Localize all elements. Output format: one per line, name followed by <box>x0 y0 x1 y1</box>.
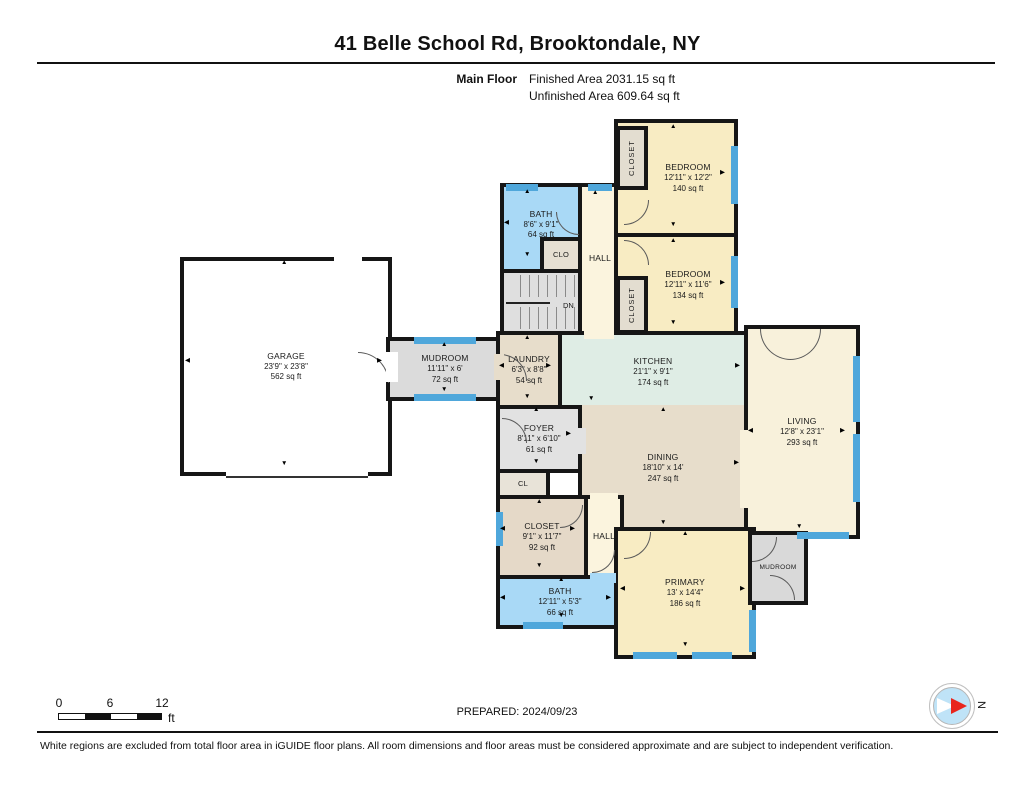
footer-divider <box>37 731 998 733</box>
door-opening <box>576 428 586 454</box>
stair-treads-upper <box>520 275 576 297</box>
room-label: CLOSET <box>627 140 637 176</box>
room-label: LIVING 12'8" x 23'1" 293 sq ft <box>780 416 824 448</box>
room-label: CLOSET 9'1" x 11'7" 92 sq ft <box>523 521 562 553</box>
room-label: CLOSET <box>627 287 637 323</box>
room-label: MUDROOM <box>759 564 796 572</box>
room-closet-bedroom-mid: CLOSET <box>616 276 648 334</box>
compass-north-label: N <box>975 701 987 709</box>
title-divider <box>37 62 995 64</box>
room-label: MUDROOM 11'11" x 6' 72 sq ft <box>421 353 468 385</box>
room-bath-lower: BATH 12'11" x 5'3" 66 sq ft <box>496 575 624 629</box>
disclaimer-text: White regions are excluded from total fl… <box>40 740 1000 752</box>
compass-rose-icon <box>933 687 971 725</box>
garage-door <box>226 468 368 478</box>
door-opening <box>590 493 618 503</box>
window <box>731 256 738 308</box>
finished-area: Finished Area 2031.15 sq ft <box>529 72 675 86</box>
floor-label: Main Floor <box>297 72 517 86</box>
window <box>506 184 538 191</box>
window <box>853 356 860 422</box>
stair-treads-lower <box>520 307 576 329</box>
room-label: BEDROOM 12'11" x 12'2" 140 sq ft <box>640 162 712 194</box>
room-kitchen: KITCHEN 21'1" x 9'1" 174 sq ft <box>558 331 748 409</box>
window <box>853 434 860 502</box>
room-label: BATH 12'11" x 5'3" 66 sq ft <box>538 586 581 618</box>
window <box>523 622 563 629</box>
window <box>414 337 476 344</box>
room-label: CL <box>518 479 528 489</box>
door-opening <box>386 352 398 382</box>
window <box>414 394 476 401</box>
room-closet-bedroom-top: CLOSET <box>616 126 648 190</box>
room-label: CLO <box>553 250 569 260</box>
room-label: BEDROOM 12'11" x 11'6" 134 sq ft <box>640 269 711 301</box>
compass-needle-red-icon <box>951 698 967 714</box>
stair-divider <box>506 302 550 304</box>
room-label: GARAGE 23'9" x 23'8" 562 sq ft <box>264 351 308 383</box>
window <box>588 184 612 191</box>
room-label: HALL <box>593 531 615 542</box>
floor-plan-page: 41 Belle School Rd, Brooktondale, NY Mai… <box>0 0 1035 800</box>
room-label: KITCHEN 21'1" x 9'1" 174 sq ft <box>633 356 672 388</box>
room-clo: CLO <box>540 237 582 273</box>
door-opening <box>334 257 362 264</box>
window <box>633 652 677 659</box>
door-opening <box>584 329 614 339</box>
scale-tick-6: 6 <box>104 696 116 710</box>
window <box>797 532 849 539</box>
window <box>749 610 756 652</box>
door-opening <box>590 573 616 583</box>
prepared-date: PREPARED: 2024/09/23 <box>377 706 657 718</box>
room-label: DINING 18'10" x 14' 247 sq ft <box>642 452 683 484</box>
wall-opening <box>740 430 752 508</box>
scale-unit: ft <box>168 711 175 725</box>
scale-bar <box>58 713 162 720</box>
scale-tick-12: 12 <box>154 696 170 710</box>
room-mudroom: MUDROOM 11'11" x 6' 72 sq ft <box>386 337 504 401</box>
window <box>692 652 732 659</box>
scale-tick-0: 0 <box>53 696 65 710</box>
stairs-down-label: DN <box>563 301 574 310</box>
unfinished-area: Unfinished Area 609.64 sq ft <box>529 89 680 103</box>
room-label: PRIMARY 13' x 14'4" 186 sq ft <box>665 577 705 609</box>
room-label: HALL <box>589 253 611 264</box>
door-opening <box>494 354 504 380</box>
compass <box>929 683 975 729</box>
page-title: 41 Belle School Rd, Brooktondale, NY <box>0 33 1035 56</box>
window <box>731 146 738 204</box>
window <box>496 512 503 546</box>
